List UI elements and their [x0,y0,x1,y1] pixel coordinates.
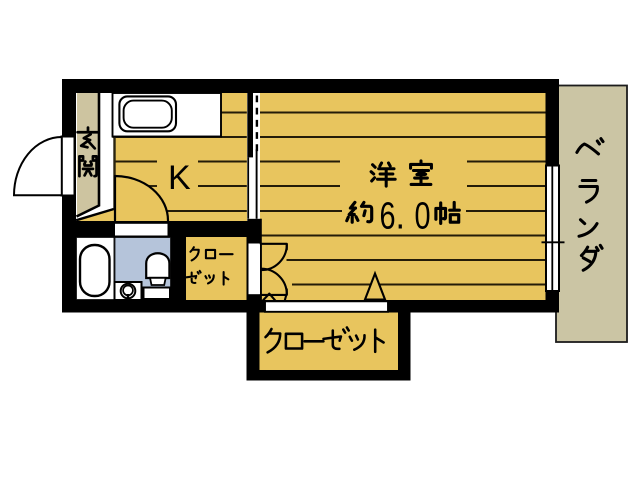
svg-text:K: K [168,159,191,197]
svg-text:6: 6 [380,195,396,238]
svg-text:0: 0 [415,195,431,238]
svg-text:.: . [396,194,406,237]
